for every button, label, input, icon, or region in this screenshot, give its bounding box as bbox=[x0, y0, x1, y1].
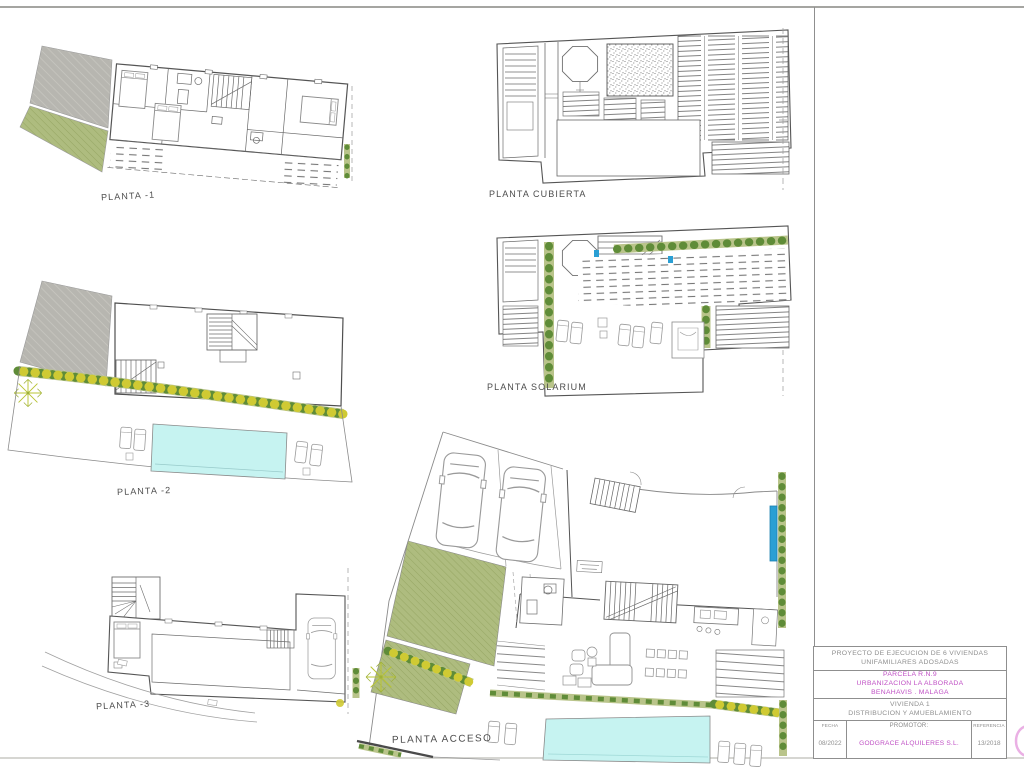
tree bbox=[14, 379, 41, 406]
skylight-octagon bbox=[562, 46, 597, 81]
floorplan-planta-1 bbox=[0, 30, 370, 190]
glass-door bbox=[770, 506, 777, 561]
deck-grid bbox=[578, 248, 790, 308]
referencia-cell: REFERENCIA 13/2018 bbox=[972, 721, 1006, 758]
label-planta-acceso: PLANTA ACCESO bbox=[392, 733, 492, 746]
gravel-area bbox=[607, 44, 673, 96]
entrance-stair bbox=[590, 478, 640, 512]
terrace-deck bbox=[281, 157, 339, 188]
drawing-sheet: PLANTA -1 PLANTA CUBIERTA PLANTA SOLARIU… bbox=[0, 0, 1024, 768]
drawing-title: VIVIENDA 1 DISTRIBUCION Y AMUEBLAMIENTO bbox=[814, 699, 1006, 721]
louvers bbox=[716, 306, 789, 348]
bed bbox=[152, 103, 181, 141]
bed bbox=[300, 96, 338, 125]
bed bbox=[119, 70, 148, 108]
bed bbox=[114, 622, 140, 658]
building-planta-1 bbox=[107, 62, 347, 188]
living-room-furniture bbox=[563, 633, 632, 687]
title-block: PROYECTO DE EJECUCION DE 6 VIVIENDAS UNI… bbox=[813, 646, 1007, 759]
parking bbox=[433, 450, 561, 569]
fecha-cell: FECHA 08/2022 bbox=[814, 721, 847, 758]
project-location: PARCELA R.N.9 URBANIZACION LA ALBORADA B… bbox=[814, 671, 1006, 699]
label-planta-1: PLANTA -1 bbox=[101, 190, 156, 203]
stair bbox=[112, 577, 160, 619]
floorplan-planta-cubierta bbox=[480, 20, 810, 195]
bathroom bbox=[520, 577, 564, 625]
kitchen bbox=[693, 606, 778, 646]
stair bbox=[604, 581, 678, 623]
louvers bbox=[716, 650, 784, 697]
label-planta-solarium: PLANTA SOLARIUM bbox=[487, 382, 587, 392]
sheet-border-top bbox=[0, 6, 1024, 8]
promotor-cell: PROMOTOR: GODGRACE ALQUILERES S.L. bbox=[847, 721, 972, 758]
car bbox=[306, 618, 336, 679]
dining-chairs bbox=[645, 649, 687, 678]
terrace-deck bbox=[109, 142, 165, 173]
label-planta-2: PLANTA -2 bbox=[117, 485, 172, 497]
floorplan-planta-solarium bbox=[480, 218, 810, 398]
car bbox=[493, 466, 549, 563]
label-planta-cubierta: PLANTA CUBIERTA bbox=[489, 189, 587, 199]
floorplan-planta-acceso bbox=[355, 418, 815, 768]
pool bbox=[543, 716, 710, 763]
louvers bbox=[497, 643, 545, 683]
logo-mark bbox=[1008, 720, 1024, 764]
roof-terrace bbox=[557, 120, 700, 176]
car bbox=[433, 452, 489, 549]
floorplan-planta-3 bbox=[35, 555, 365, 723]
project-title: PROYECTO DE EJECUCION DE 6 VIVIENDAS UNI… bbox=[814, 647, 1006, 671]
floorplan-planta-2 bbox=[0, 272, 365, 494]
door-label bbox=[577, 560, 603, 572]
